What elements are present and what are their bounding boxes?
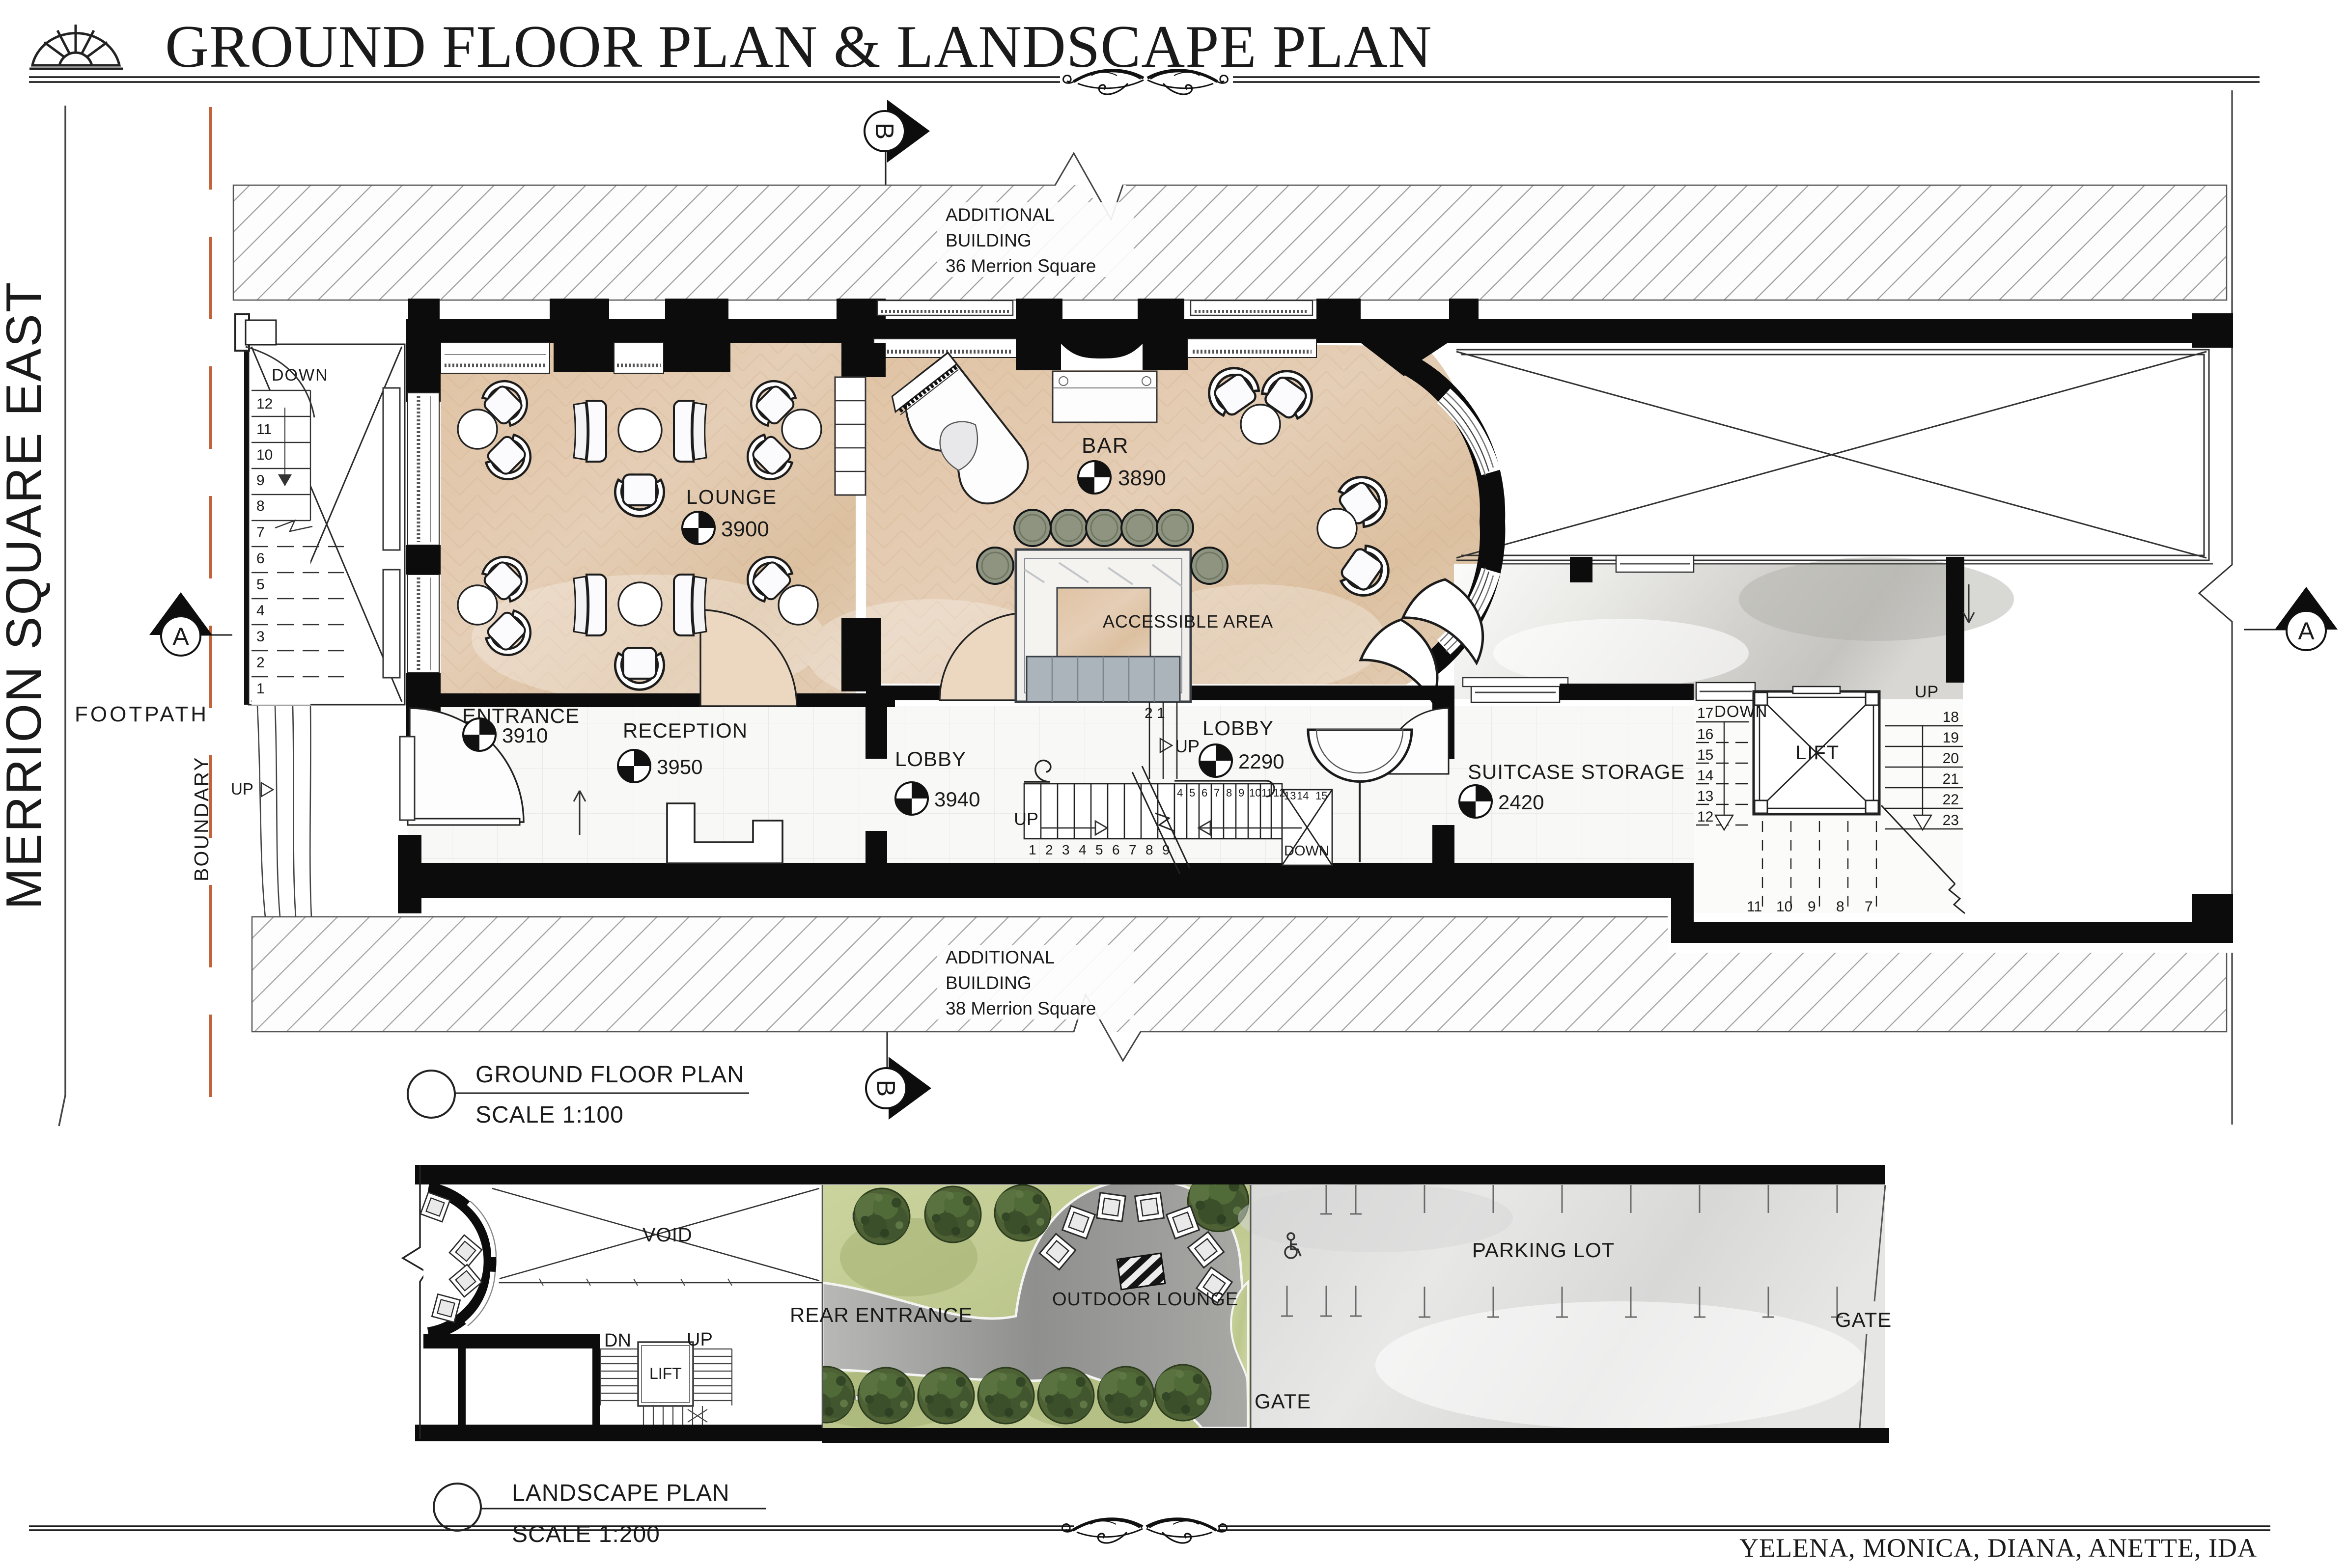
- svg-text:1: 1: [1029, 842, 1036, 857]
- svg-text:38 Merrion Square: 38 Merrion Square: [946, 998, 1096, 1018]
- svg-text:20: 20: [1943, 750, 1959, 767]
- svg-text:12: 12: [1273, 787, 1285, 799]
- svg-text:36 Merrion Square: 36 Merrion Square: [946, 256, 1096, 276]
- svg-text:A: A: [172, 623, 189, 650]
- svg-text:2: 2: [1045, 842, 1053, 857]
- svg-text:9: 9: [1162, 842, 1170, 857]
- svg-text:GROUND FLOOR PLAN: GROUND FLOOR PLAN: [475, 1062, 745, 1088]
- svg-text:4: 4: [256, 603, 265, 619]
- svg-text:7: 7: [256, 524, 265, 541]
- svg-text:5: 5: [256, 577, 265, 593]
- svg-text:4: 4: [1079, 842, 1087, 857]
- svg-text:9: 9: [1238, 787, 1244, 799]
- svg-text:2: 2: [256, 655, 265, 671]
- svg-text:1: 1: [256, 681, 265, 697]
- svg-text:UP: UP: [1014, 809, 1038, 829]
- svg-text:13: 13: [1284, 790, 1296, 802]
- svg-text:SCALE 1:200: SCALE 1:200: [512, 1521, 660, 1547]
- svg-text:15: 15: [1697, 747, 1713, 763]
- svg-text:GATE: GATE: [1255, 1390, 1311, 1413]
- svg-text:4: 4: [1177, 787, 1183, 799]
- svg-text:REAR ENTRANCE: REAR ENTRANCE: [790, 1303, 973, 1326]
- svg-text:LANDSCAPE PLAN: LANDSCAPE PLAN: [512, 1480, 730, 1506]
- svg-text:RECEPTION: RECEPTION: [623, 719, 748, 742]
- svg-text:3900: 3900: [721, 517, 769, 541]
- svg-text:ADDITIONAL: ADDITIONAL: [946, 947, 1055, 967]
- svg-text:ADDITIONAL: ADDITIONAL: [946, 205, 1055, 225]
- svg-text:14: 14: [1697, 768, 1713, 784]
- svg-text:YELENA, MONICA, DIANA, ANETTE,: YELENA, MONICA, DIANA, ANETTE, IDA: [1739, 1533, 2257, 1563]
- svg-text:19: 19: [1943, 730, 1959, 746]
- svg-text:7: 7: [1865, 899, 1873, 915]
- svg-text:10: 10: [256, 447, 273, 463]
- svg-text:LOBBY: LOBBY: [895, 747, 966, 770]
- svg-text:3950: 3950: [657, 755, 702, 778]
- svg-text:FOOTPATH: FOOTPATH: [75, 702, 209, 726]
- svg-text:7: 7: [1214, 787, 1220, 799]
- svg-text:PARKING LOT: PARKING LOT: [1472, 1238, 1615, 1262]
- svg-text:23: 23: [1943, 812, 1959, 828]
- svg-text:GATE: GATE: [1835, 1308, 1892, 1331]
- svg-text:DN: DN: [604, 1330, 631, 1351]
- svg-text:UP: UP: [1175, 736, 1200, 756]
- svg-text:18: 18: [1943, 709, 1959, 725]
- svg-text:3: 3: [1062, 842, 1070, 857]
- svg-text:15: 15: [1315, 790, 1327, 802]
- svg-text:B: B: [870, 123, 898, 140]
- svg-text:8: 8: [1145, 842, 1153, 857]
- svg-text:BUILDING: BUILDING: [946, 973, 1032, 993]
- svg-text:6: 6: [1112, 842, 1120, 857]
- svg-text:17: 17: [1697, 705, 1713, 721]
- svg-text:21: 21: [1943, 771, 1959, 787]
- svg-text:VOID: VOID: [642, 1224, 693, 1246]
- svg-text:11: 11: [1747, 899, 1762, 915]
- svg-text:BOUNDARY: BOUNDARY: [190, 756, 213, 881]
- svg-text:11: 11: [1261, 787, 1273, 799]
- svg-text:OUTDOOR LOUNGE: OUTDOOR LOUNGE: [1052, 1289, 1238, 1310]
- svg-text:B: B: [871, 1080, 900, 1097]
- svg-text:7: 7: [1129, 842, 1137, 857]
- svg-text:13: 13: [1697, 788, 1713, 804]
- svg-text:UP: UP: [687, 1329, 713, 1350]
- svg-text:2420: 2420: [1498, 791, 1544, 814]
- svg-text:14: 14: [1297, 790, 1309, 802]
- svg-text:BUILDING: BUILDING: [946, 230, 1032, 250]
- svg-text:5: 5: [1189, 787, 1195, 799]
- svg-text:BAR: BAR: [1082, 434, 1129, 458]
- svg-text:2290: 2290: [1238, 750, 1284, 773]
- svg-text:UP: UP: [231, 780, 253, 798]
- svg-text:3890: 3890: [1118, 466, 1166, 490]
- svg-text:UP: UP: [1915, 683, 1939, 701]
- svg-text:3: 3: [256, 629, 265, 645]
- svg-text:LOUNGE: LOUNGE: [686, 486, 777, 508]
- svg-text:SCALE 1:100: SCALE 1:100: [475, 1102, 624, 1128]
- svg-text:LOBBY: LOBBY: [1202, 716, 1274, 740]
- svg-text:GROUND FLOOR PLAN & LANDSCAPE: GROUND FLOOR PLAN & LANDSCAPE PLAN: [165, 13, 1432, 80]
- svg-text:9: 9: [256, 472, 265, 489]
- svg-text:6: 6: [256, 550, 265, 567]
- svg-text:16: 16: [1697, 726, 1713, 743]
- svg-text:6: 6: [1201, 787, 1207, 799]
- svg-text:10: 10: [1776, 899, 1792, 915]
- svg-text:3910: 3910: [502, 724, 548, 747]
- svg-text:8: 8: [1226, 787, 1232, 799]
- svg-text:LIFT: LIFT: [649, 1365, 682, 1382]
- svg-text:11: 11: [256, 421, 272, 438]
- svg-text:DOWN: DOWN: [1284, 843, 1329, 859]
- svg-text:10: 10: [1249, 787, 1261, 799]
- svg-text:12: 12: [256, 396, 273, 412]
- svg-text:8: 8: [1836, 899, 1844, 915]
- svg-text:3940: 3940: [934, 788, 980, 811]
- svg-text:DOWN: DOWN: [1714, 702, 1767, 720]
- svg-text:A: A: [2298, 617, 2315, 645]
- svg-text:SUITCASE STORAGE: SUITCASE STORAGE: [1468, 760, 1685, 783]
- svg-text:8: 8: [256, 498, 265, 514]
- svg-text:22: 22: [1943, 792, 1959, 808]
- svg-text:LIFT: LIFT: [1795, 742, 1840, 764]
- svg-text:MERRION SQUARE EAST: MERRION SQUARE EAST: [0, 281, 52, 909]
- svg-text:ACCESSIBLE AREA: ACCESSIBLE AREA: [1103, 611, 1273, 632]
- svg-text:9: 9: [1808, 899, 1816, 915]
- svg-text:12: 12: [1697, 809, 1713, 825]
- svg-text:2 1: 2 1: [1145, 705, 1165, 721]
- svg-text:5: 5: [1095, 842, 1103, 857]
